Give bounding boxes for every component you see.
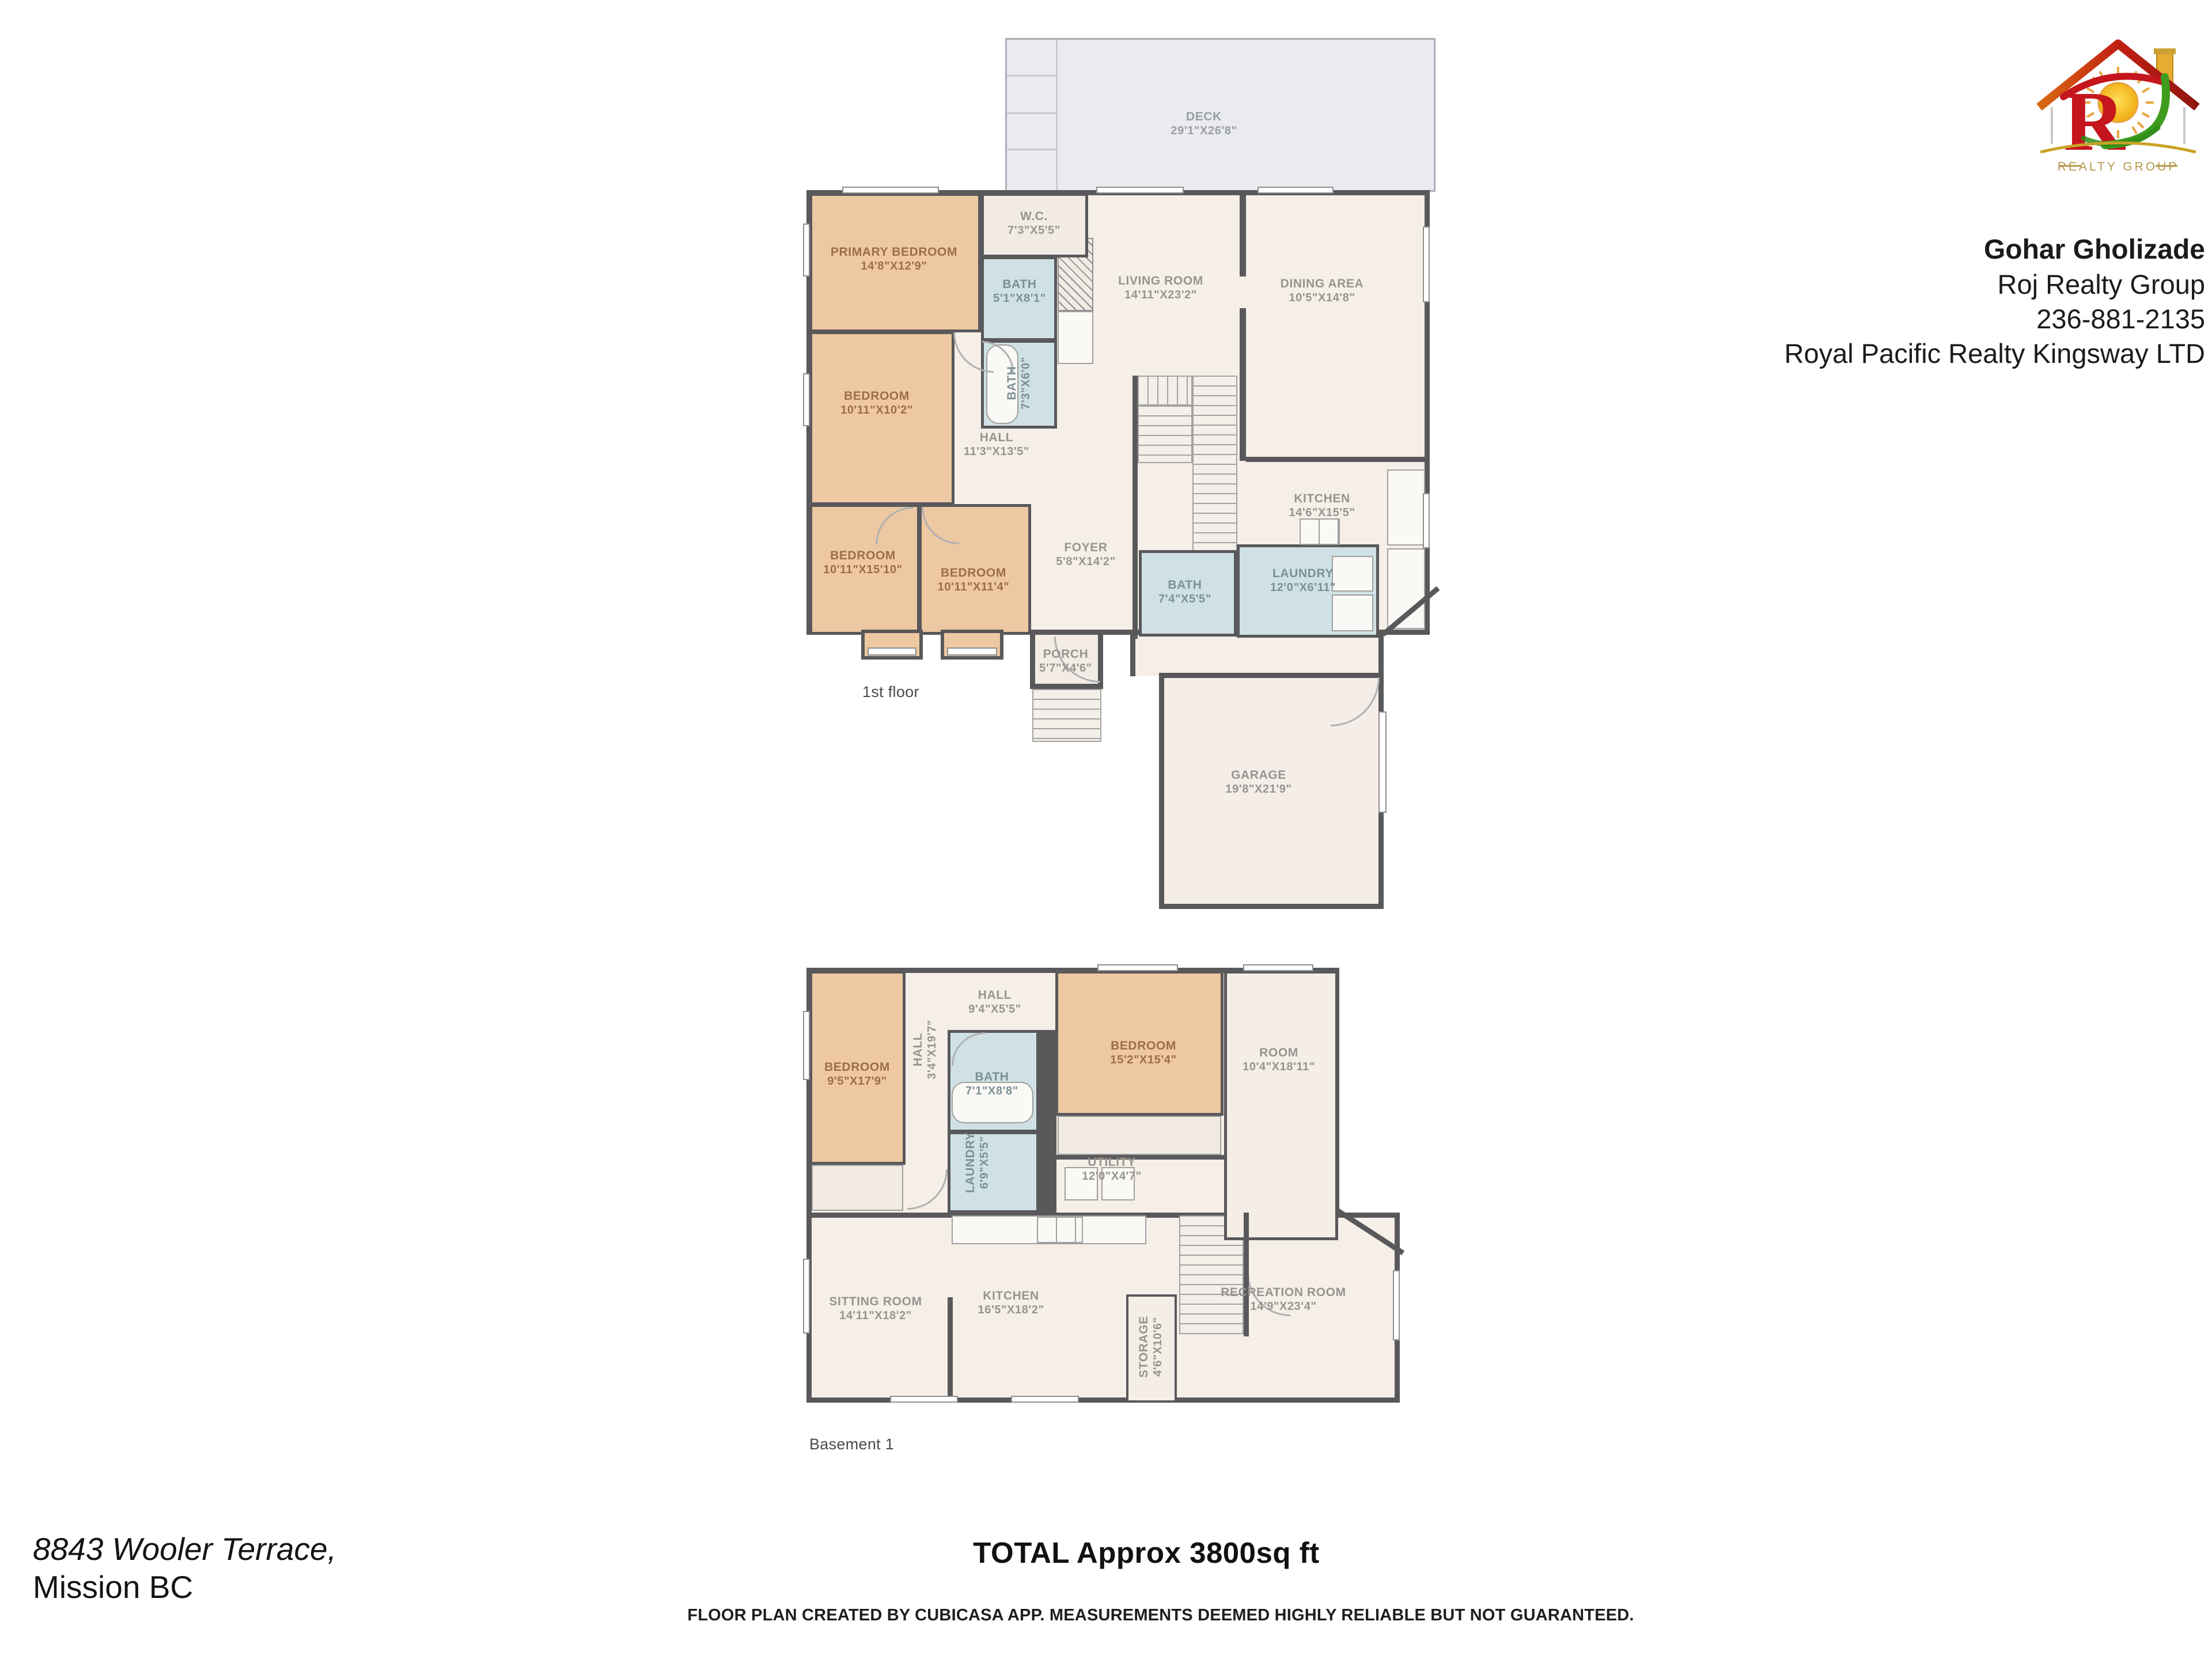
- room-label-primary-bedroom: PRIMARY BEDROOM14'8"X12'9": [831, 245, 957, 273]
- roj-realty-logo: R REALTY GROUP: [2029, 29, 2207, 177]
- stove-icon: [1300, 518, 1340, 545]
- dryer-icon: [1332, 594, 1373, 631]
- wall-chunk: [1038, 1030, 1056, 1213]
- room-label-basement-kitchen: KITCHEN16'5"X18'2": [978, 1289, 1044, 1317]
- agent-brokerage: Royal Pacific Realty Kingsway LTD: [1785, 336, 2206, 371]
- stairs-run-b: [1138, 406, 1192, 463]
- room-label-bath-ensuite: BATH5'1"X8'1": [993, 278, 1046, 305]
- room-label-bedroom-3: BEDROOM10'11"X15'10": [823, 549, 903, 577]
- wall-living-dining-lower: [1240, 308, 1246, 461]
- room-bedroom-2: [809, 331, 955, 505]
- window: [890, 1396, 958, 1403]
- window: [803, 224, 810, 276]
- property-address: 8843 Wooler Terrace, Mission BC: [33, 1530, 336, 1606]
- room-label-hall: HALL11'3"X13'5": [964, 431, 1029, 459]
- floor-plan-page: R REALTY GROUP Gohar Gholizade Roj Realt…: [0, 0, 2212, 1659]
- wall-stairs: [1132, 376, 1138, 639]
- window: [803, 373, 810, 426]
- room-label-bath-hall: BATH7'3"X6'0": [1005, 357, 1033, 410]
- address-line-1: 8843 Wooler Terrace,: [33, 1530, 336, 1568]
- porch-stairs: [1032, 689, 1101, 742]
- room-label-basement-utility: UTILITY12'0"X4'7": [1082, 1156, 1141, 1183]
- window: [803, 1259, 810, 1334]
- window: [1423, 493, 1430, 548]
- window: [1393, 1270, 1400, 1340]
- basement-closet-1: [812, 1165, 903, 1211]
- room-label-basement-hall-side: HALL3'4"X19'7": [911, 1020, 939, 1079]
- room-label-porch: PORCH5'7"X4'6": [1039, 647, 1092, 675]
- kitchen-counter: [1387, 469, 1425, 546]
- room-label-recreation-room: RECREATION ROOM14'9"X23'4": [1221, 1286, 1346, 1313]
- wardrobe: [1058, 311, 1093, 364]
- stairs-run-c: [1192, 376, 1237, 551]
- room-label-storage: STORAGE4'6"X10'6": [1137, 1316, 1165, 1378]
- window: [1423, 226, 1430, 302]
- room-label-basement-bedroom-2: BEDROOM15'2"X15'4": [1110, 1039, 1176, 1067]
- total-area: TOTAL Approx 3800sq ft: [824, 1536, 1469, 1570]
- washer-icon: [1332, 556, 1373, 592]
- agent-info-block: Gohar Gholizade Roj Realty Group 236-881…: [1785, 233, 2206, 371]
- room-label-dining-area: DINING AREA10'5"X14'8": [1281, 277, 1364, 305]
- room-label-kitchen: KITCHEN14'6"X15'5": [1289, 492, 1355, 520]
- room-label-laundry: LAUNDRY12'0"X6'11": [1270, 567, 1336, 594]
- address-line-2: Mission BC: [33, 1568, 336, 1606]
- agent-name: Gohar Gholizade: [1785, 233, 2206, 267]
- wall-sitting-kitchen: [948, 1297, 953, 1403]
- stairs-run-a: [1138, 376, 1192, 406]
- room-label-sitting-room: SITTING ROOM14'11"X18'2": [829, 1295, 922, 1323]
- basement-floor-tag: Basement 1: [809, 1435, 894, 1453]
- agent-company: Roj Realty Group: [1785, 267, 2206, 302]
- room-label-foyer: FOYER5'8"X14'2": [1056, 541, 1115, 569]
- room-basement-room: [1224, 971, 1338, 1240]
- room-label-basement-bedroom-1: BEDROOM9'5"X17'9": [824, 1060, 890, 1088]
- window: [803, 1011, 810, 1080]
- room-label-basement-room: ROOM10'4"X18'11": [1243, 1046, 1315, 1074]
- agent-phone: 236-881-2135: [1785, 302, 2206, 336]
- room-label-basement-bath: BATH7'1"X8'8": [965, 1070, 1018, 1098]
- room-label-basement-laundry: LAUNDRY6'9"X5'5": [964, 1132, 991, 1193]
- window: [1257, 187, 1334, 194]
- room-label-bedroom-4: BEDROOM10'11"X11'4": [938, 566, 1010, 594]
- window: [1243, 964, 1313, 971]
- room-label-bedroom-2: BEDROOM10'11"X10'2": [840, 389, 913, 417]
- garage-side-door: [1378, 711, 1387, 813]
- deck-door: [1096, 187, 1184, 194]
- wall-rec-left: [1244, 1213, 1249, 1336]
- room-label-living-room: LIVING ROOM14'11"X23'2": [1118, 274, 1203, 302]
- window: [842, 187, 939, 194]
- wall-living-dining-upper: [1240, 193, 1246, 276]
- disclaimer-text: FLOOR PLAN CREATED BY CUBICASA APP. MEAS…: [645, 1606, 1676, 1625]
- logo-house-icon: R REALTY GROUP: [2039, 44, 2197, 173]
- room-basement-laundry: [948, 1131, 1039, 1213]
- svg-text:R: R: [2063, 74, 2126, 169]
- window: [1097, 964, 1178, 971]
- logo-realty-group-text: REALTY GROUP: [2058, 160, 2179, 173]
- basement-closet-2: [1058, 1116, 1221, 1155]
- room-label-bath-main: BATH7'4"X5'5": [1158, 578, 1211, 606]
- stove-icon: [1037, 1217, 1083, 1243]
- window: [1011, 1396, 1079, 1403]
- wall-dining-kitchen: [1246, 457, 1430, 462]
- room-label-wc: W.C.7'3"X5'5": [1007, 210, 1060, 237]
- room-label-deck: DECK29'1"X26'8": [1171, 110, 1237, 138]
- first-floor-tag: 1st floor: [862, 683, 919, 701]
- room-label-garage: GARAGE19'8"X21'9": [1225, 768, 1291, 796]
- room-label-basement-hall: HALL9'4"X5'5": [968, 988, 1021, 1016]
